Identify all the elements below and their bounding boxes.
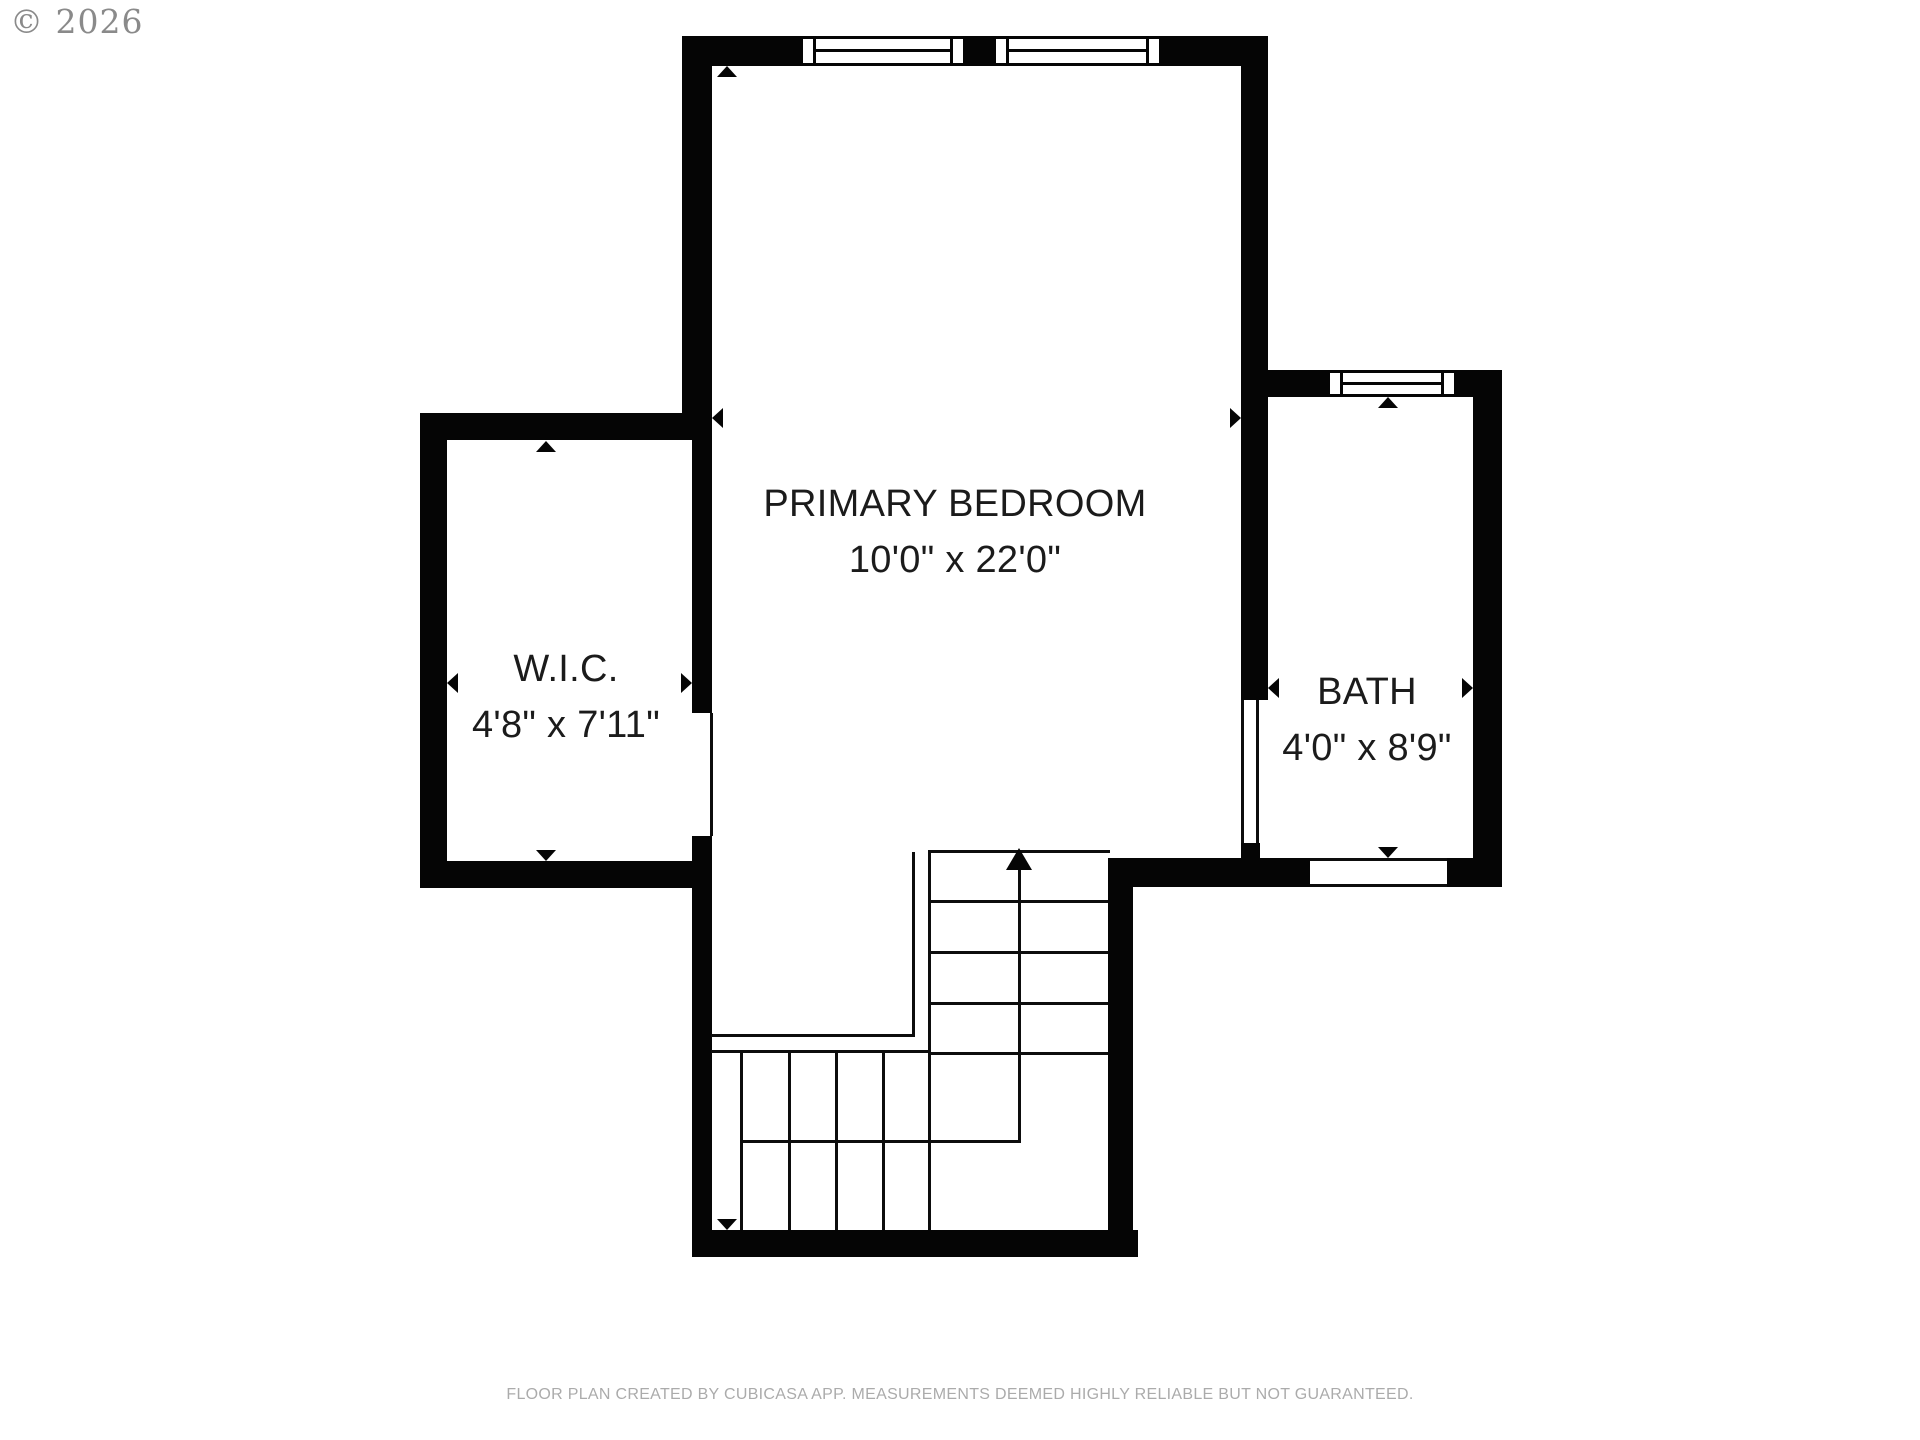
wall-segment (1241, 843, 1260, 887)
wall-segment (692, 440, 712, 713)
disclaimer-text: FLOOR PLAN CREATED BY CUBICASA APP. MEAS… (0, 1386, 1920, 1404)
measure-arrow-icon (717, 1219, 737, 1230)
wall-segment (1473, 370, 1502, 887)
stair-line (1018, 870, 1021, 1143)
measure-arrow-icon (712, 408, 723, 428)
measure-arrow-icon (1378, 397, 1398, 408)
door-opening-line (1310, 884, 1447, 887)
measure-arrow-icon (717, 66, 737, 77)
wall-segment (1241, 36, 1268, 700)
wall-segment (420, 861, 712, 888)
room-dimensions: 4'8" x 7'11" (472, 702, 660, 748)
stair-line (711, 1034, 915, 1037)
measure-arrow-icon (681, 673, 692, 693)
door-opening-line (1310, 858, 1447, 861)
measure-arrow-icon (1378, 847, 1398, 858)
wall-segment (966, 36, 993, 66)
window-icon (800, 36, 966, 66)
wall-segment (1108, 858, 1310, 887)
stair-line (912, 852, 915, 1037)
room-name: BATH (1317, 671, 1417, 713)
floor-plan: PRIMARY BEDROOM 10'0" x 22'0" W.I.C. 4'8… (0, 0, 1920, 1440)
room-dimensions: 4'0" x 8'9" (1282, 725, 1451, 771)
wall-segment (1108, 858, 1133, 1257)
wall-segment (682, 36, 712, 440)
measure-arrow-icon (536, 441, 556, 452)
window-icon (993, 36, 1162, 66)
door-opening-line (1256, 700, 1259, 843)
measure-arrow-icon (1462, 678, 1473, 698)
stairs-direction-arrow-icon (1006, 848, 1032, 870)
stair-line (740, 1140, 1020, 1143)
measure-arrow-icon (536, 850, 556, 861)
door-opening-line (710, 713, 713, 836)
wall-segment (420, 413, 712, 440)
stair-line (711, 1050, 931, 1053)
room-name: PRIMARY BEDROOM (763, 483, 1146, 525)
floor-plan-page: © 2026 PRIMARY BEDROOM 10'0" x 22'0" W.I… (0, 0, 1920, 1440)
measure-arrow-icon (1230, 408, 1241, 428)
room-label-bath: BATH 4'0" x 8'9" (1282, 669, 1451, 771)
wall-segment (420, 413, 447, 888)
room-dimensions: 10'0" x 22'0" (763, 537, 1146, 583)
room-label-wic: W.I.C. 4'8" x 7'11" (472, 646, 660, 748)
wall-segment (1268, 370, 1327, 397)
wall-segment (692, 836, 712, 1257)
measure-arrow-icon (1268, 678, 1279, 698)
stair-line (928, 850, 931, 1230)
door-opening-line (1241, 700, 1244, 843)
room-label-primary-bedroom: PRIMARY BEDROOM 10'0" x 22'0" (763, 481, 1146, 583)
room-name: W.I.C. (513, 648, 618, 690)
wall-segment (692, 1230, 1138, 1257)
measure-arrow-icon (447, 673, 458, 693)
window-icon (1327, 370, 1457, 397)
